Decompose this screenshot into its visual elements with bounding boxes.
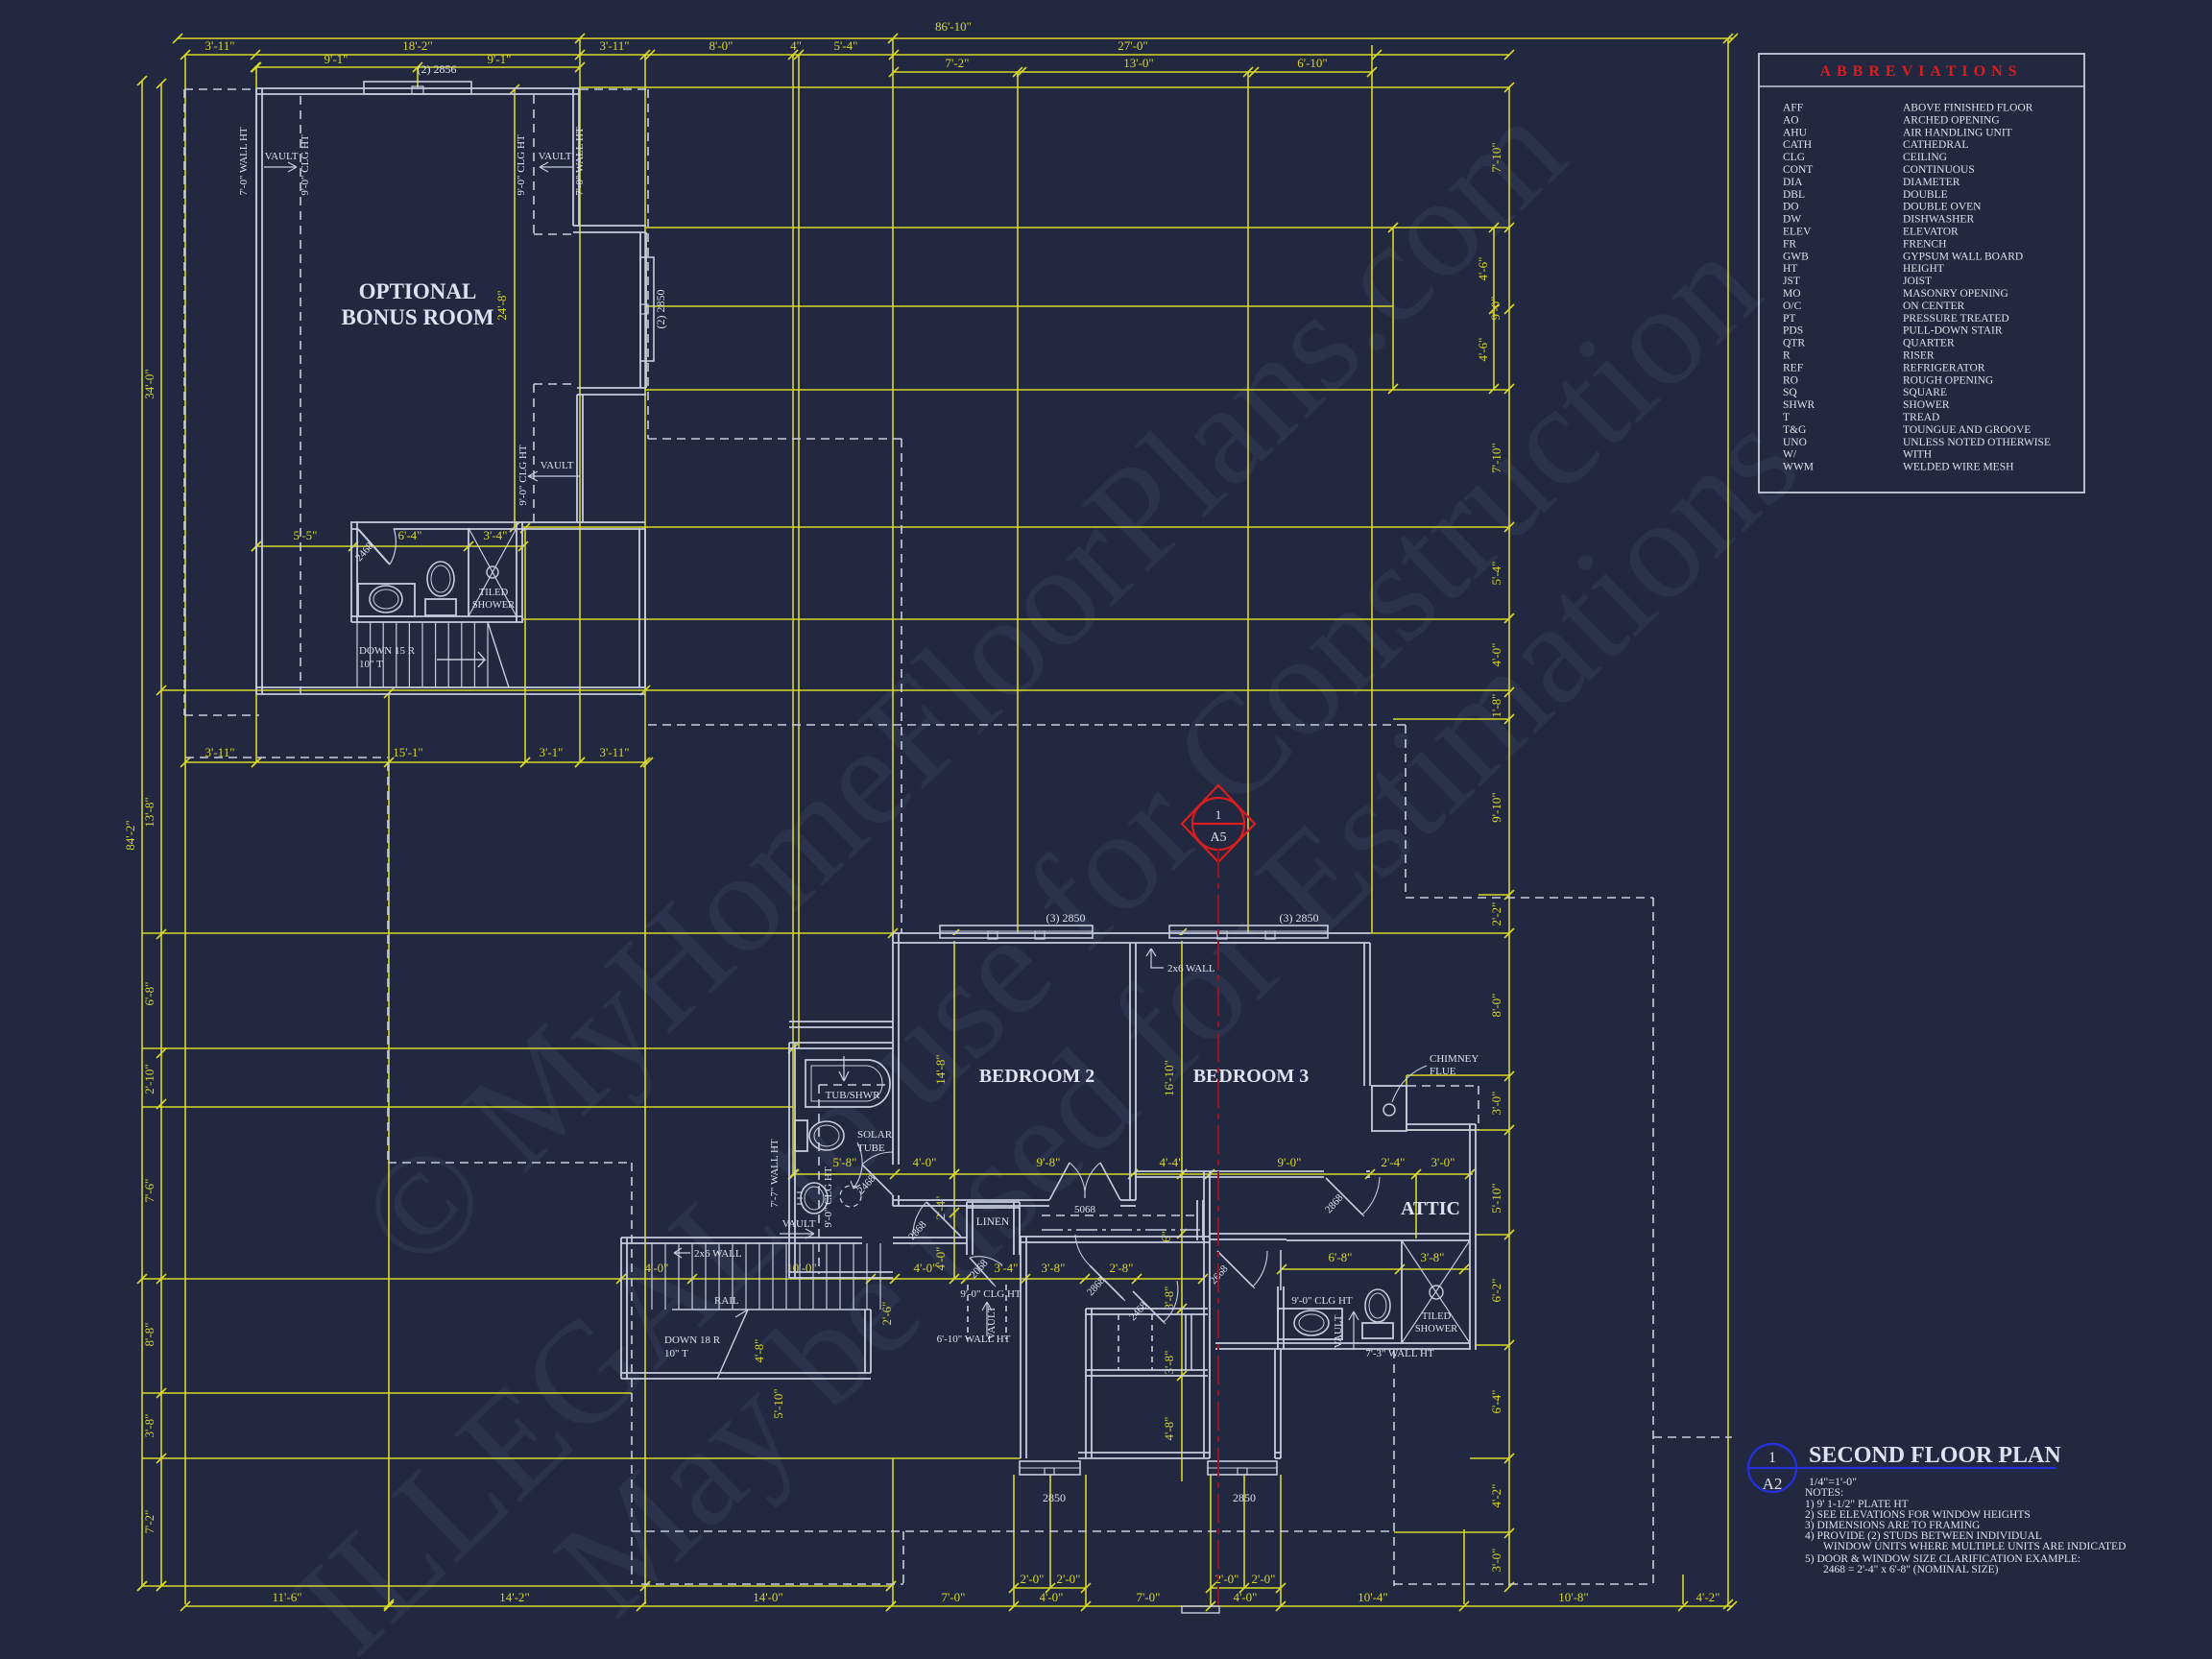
svg-text:6'-4": 6'-4" xyxy=(398,528,422,542)
svg-text:DIAMETER: DIAMETER xyxy=(1903,177,1960,188)
svg-text:(2) 2856: (2) 2856 xyxy=(418,62,457,76)
svg-text:10'-4": 10'-4" xyxy=(1358,1590,1387,1604)
svg-text:RISER: RISER xyxy=(1903,350,1935,362)
svg-text:5'-8": 5'-8" xyxy=(833,1155,857,1169)
svg-text:4'-0": 4'-0" xyxy=(1489,643,1503,667)
svg-text:9'-1": 9'-1" xyxy=(325,52,349,66)
svg-text:18'-2": 18'-2" xyxy=(402,38,432,53)
svg-text:T: T xyxy=(1783,412,1790,423)
svg-text:13'-0": 13'-0" xyxy=(1123,56,1153,70)
svg-text:1: 1 xyxy=(1215,807,1222,822)
svg-text:5068: 5068 xyxy=(1074,1204,1096,1215)
svg-text:7'-7" WALL HT: 7'-7" WALL HT xyxy=(769,1139,781,1208)
svg-text:WITH: WITH xyxy=(1903,449,1932,461)
svg-text:MO: MO xyxy=(1783,288,1801,300)
svg-text:3'-0": 3'-0" xyxy=(1489,1549,1503,1573)
svg-text:R: R xyxy=(1783,350,1791,362)
svg-text:9'-8": 9'-8" xyxy=(1037,1155,1061,1169)
svg-text:(2) 2850: (2) 2850 xyxy=(654,290,667,329)
svg-text:(3) 2850: (3) 2850 xyxy=(1280,911,1319,925)
svg-text:7'-6": 7'-6" xyxy=(142,1179,156,1203)
svg-text:ABBREVIATIONS: ABBREVIATIONS xyxy=(1819,63,2022,80)
svg-text:8'-0": 8'-0" xyxy=(709,38,733,53)
svg-text:7'-0" WALL HT: 7'-0" WALL HT xyxy=(238,127,250,196)
svg-text:2'-2": 2'-2" xyxy=(1489,902,1503,926)
svg-text:DW: DW xyxy=(1783,214,1801,226)
svg-text:3'-11": 3'-11" xyxy=(600,745,630,759)
svg-text:ATTIC: ATTIC xyxy=(1401,1198,1460,1219)
svg-text:PULL-DOWN STAIR: PULL-DOWN STAIR xyxy=(1903,325,2003,337)
svg-text:CEILING: CEILING xyxy=(1903,152,1947,163)
svg-text:4'-0": 4'-0" xyxy=(913,1155,937,1169)
svg-text:ELEVATOR: ELEVATOR xyxy=(1903,227,1959,238)
svg-text:VAULT: VAULT xyxy=(1333,1314,1344,1348)
svg-text:NOTES:: NOTES: xyxy=(1805,1487,1843,1499)
svg-text:VAULT: VAULT xyxy=(539,151,572,162)
svg-text:UNLESS NOTED OTHERWISE: UNLESS NOTED OTHERWISE xyxy=(1903,437,2051,448)
svg-text:3'-11": 3'-11" xyxy=(205,38,235,53)
svg-text:7'-2": 7'-2" xyxy=(946,56,970,70)
svg-text:CONTINUOUS: CONTINUOUS xyxy=(1903,164,1975,176)
svg-text:ARCHED OPENING: ARCHED OPENING xyxy=(1903,114,2000,126)
svg-text:SHOWER: SHOWER xyxy=(1903,399,1950,411)
svg-text:DBL: DBL xyxy=(1783,189,1805,201)
svg-text:FR: FR xyxy=(1783,238,1796,250)
svg-text:8'-0": 8'-0" xyxy=(1489,994,1503,1018)
svg-text:86'-10": 86'-10" xyxy=(935,19,972,34)
svg-text:3'-4": 3'-4" xyxy=(995,1261,1019,1275)
svg-text:84'-2": 84'-2" xyxy=(123,820,137,850)
svg-text:4'-2": 4'-2" xyxy=(1489,1484,1503,1508)
svg-text:7'-0": 7'-0" xyxy=(942,1590,966,1604)
svg-text:SQ: SQ xyxy=(1783,387,1797,398)
svg-text:TILED: TILED xyxy=(1422,1311,1452,1322)
svg-text:27'-0": 27'-0" xyxy=(1118,38,1147,53)
svg-text:3'-1": 3'-1" xyxy=(540,745,564,759)
svg-text:9'-0" CLG HT: 9'-0" CLG HT xyxy=(300,134,311,196)
svg-text:VAULT: VAULT xyxy=(541,460,574,471)
svg-text:5'-4": 5'-4" xyxy=(1489,562,1503,586)
svg-text:ABOVE FINISHED FLOOR: ABOVE FINISHED FLOOR xyxy=(1903,103,2033,114)
svg-text:A2: A2 xyxy=(1763,1475,1783,1493)
svg-text:BONUS ROOM: BONUS ROOM xyxy=(341,305,493,329)
svg-text:AHU: AHU xyxy=(1783,127,1808,138)
svg-text:SOLAR: SOLAR xyxy=(857,1129,893,1141)
svg-text:9'-0" CLG HT: 9'-0" CLG HT xyxy=(1291,1295,1353,1307)
svg-text:DISHWASHER: DISHWASHER xyxy=(1903,214,1974,226)
svg-text:4'-2": 4'-2" xyxy=(1696,1590,1720,1604)
svg-text:9'-0": 9'-0" xyxy=(1278,1155,1302,1169)
svg-text:3'-11": 3'-11" xyxy=(600,38,630,53)
svg-text:CONT: CONT xyxy=(1783,164,1813,176)
svg-text:JOIST: JOIST xyxy=(1903,276,1932,287)
svg-text:4'-8": 4'-8" xyxy=(1162,1417,1176,1441)
svg-text:6'-8": 6'-8" xyxy=(1329,1250,1353,1264)
svg-text:SQUARE: SQUARE xyxy=(1903,387,1947,398)
svg-text:2x6 WALL: 2x6 WALL xyxy=(694,1248,742,1260)
svg-text:GWB: GWB xyxy=(1783,251,1809,262)
svg-text:2'-6": 2'-6" xyxy=(879,1302,894,1326)
svg-text:5'-5": 5'-5" xyxy=(294,528,318,542)
svg-text:AO: AO xyxy=(1783,114,1799,126)
svg-text:DOUBLE OVEN: DOUBLE OVEN xyxy=(1903,202,1982,213)
svg-text:5'-4": 5'-4" xyxy=(834,38,858,53)
svg-text:9'-0" CLG HT: 9'-0" CLG HT xyxy=(960,1288,1022,1300)
svg-text:FLUE: FLUE xyxy=(1430,1066,1456,1077)
svg-text:PDS: PDS xyxy=(1783,325,1803,337)
svg-text:34'-0": 34'-0" xyxy=(142,369,156,398)
svg-text:UNO: UNO xyxy=(1783,437,1807,448)
svg-text:SHOWER: SHOWER xyxy=(472,600,515,611)
svg-text:2850: 2850 xyxy=(1043,1491,1066,1504)
svg-text:4": 4" xyxy=(790,38,802,53)
svg-text:3'-8": 3'-8" xyxy=(1042,1261,1066,1275)
svg-text:4'-6": 4'-6" xyxy=(1476,257,1490,281)
svg-text:10'-8": 10'-8" xyxy=(1558,1590,1588,1604)
svg-text:WELDED WIRE MESH: WELDED WIRE MESH xyxy=(1903,462,2013,473)
svg-text:4'-6": 4'-6" xyxy=(1476,338,1490,362)
svg-text:7'-2": 7'-2" xyxy=(142,1510,156,1534)
svg-text:ELEV: ELEV xyxy=(1783,227,1812,238)
svg-text:BEDROOM 3: BEDROOM 3 xyxy=(1193,1066,1310,1087)
svg-text:6'-4": 6'-4" xyxy=(1489,1390,1503,1414)
svg-text:3'-0": 3'-0" xyxy=(1489,1092,1503,1116)
svg-text:REFRIGERATOR: REFRIGERATOR xyxy=(1903,362,1985,373)
svg-text:16'-10": 16'-10" xyxy=(1162,1060,1176,1096)
svg-text:14'-0": 14'-0" xyxy=(753,1590,782,1604)
svg-text:TREAD: TREAD xyxy=(1903,412,1939,423)
svg-text:(3) 2850: (3) 2850 xyxy=(1046,911,1086,925)
svg-text:DOWN 15 R: DOWN 15 R xyxy=(359,645,416,657)
svg-text:2x6 WALL: 2x6 WALL xyxy=(1167,963,1215,974)
svg-text:1: 1 xyxy=(1768,1450,1776,1466)
svg-text:TUBE: TUBE xyxy=(857,1142,885,1154)
svg-text:3'-0": 3'-0" xyxy=(1431,1155,1455,1169)
svg-text:6'-2": 6'-2" xyxy=(1489,1279,1503,1303)
svg-text:3'-8": 3'-8" xyxy=(142,1414,156,1438)
svg-text:5'-10": 5'-10" xyxy=(1489,1183,1503,1213)
svg-text:4'-8": 4'-8" xyxy=(752,1339,766,1363)
svg-text:LINEN: LINEN xyxy=(976,1216,1010,1228)
svg-text:4'-0": 4'-0" xyxy=(1040,1590,1064,1604)
svg-text:PRESSURE TREATED: PRESSURE TREATED xyxy=(1903,313,2009,325)
svg-text:T&G: T&G xyxy=(1783,424,1806,436)
svg-text:11'-6": 11'-6" xyxy=(273,1590,302,1604)
svg-text:QTR: QTR xyxy=(1783,338,1805,349)
svg-text:RAIL: RAIL xyxy=(714,1295,739,1307)
svg-text:2'-8": 2'-8" xyxy=(1110,1261,1134,1275)
svg-text:SHOWER: SHOWER xyxy=(1415,1324,1457,1334)
svg-text:8'-8": 8'-8" xyxy=(142,1323,156,1347)
svg-text:VAULT: VAULT xyxy=(782,1218,816,1230)
svg-text:W/: W/ xyxy=(1783,449,1797,461)
svg-text:FRENCH: FRENCH xyxy=(1903,238,1946,250)
svg-text:CATHEDRAL: CATHEDRAL xyxy=(1903,139,1968,151)
svg-text:ROUGH OPENING: ROUGH OPENING xyxy=(1903,374,1993,386)
svg-text:3'-8": 3'-8" xyxy=(1162,1286,1176,1310)
svg-text:24'-8": 24'-8" xyxy=(494,290,509,320)
svg-text:WWM: WWM xyxy=(1783,462,1814,473)
svg-text:CLG: CLG xyxy=(1783,152,1805,163)
svg-text:WINDOW UNITS WHERE MULTIPLE UN: WINDOW UNITS WHERE MULTIPLE UNITS ARE IN… xyxy=(1823,1541,2126,1552)
svg-text:15'-1": 15'-1" xyxy=(393,745,422,759)
svg-text:QUARTER: QUARTER xyxy=(1903,338,1955,349)
svg-text:10" T: 10" T xyxy=(664,1348,688,1359)
svg-text:1/4"=1'-0": 1/4"=1'-0" xyxy=(1809,1475,1857,1488)
svg-text:O/C: O/C xyxy=(1783,301,1802,312)
svg-text:2'-0": 2'-0" xyxy=(1252,1572,1276,1586)
svg-text:CHIMNEY: CHIMNEY xyxy=(1430,1053,1479,1065)
svg-text:6'-10" WALL HT: 6'-10" WALL HT xyxy=(937,1334,1011,1345)
svg-text:TOUNGUE AND GROOVE: TOUNGUE AND GROOVE xyxy=(1903,424,2031,436)
svg-text:JST: JST xyxy=(1783,276,1800,287)
svg-text:13'-8": 13'-8" xyxy=(142,797,156,827)
svg-text:6'-8": 6'-8" xyxy=(142,982,156,1006)
svg-text:7'-3" WALL HT: 7'-3" WALL HT xyxy=(1365,1348,1434,1359)
svg-text:4'-4": 4'-4" xyxy=(1160,1155,1184,1169)
svg-text:MASONRY OPENING: MASONRY OPENING xyxy=(1903,288,2008,300)
svg-text:6'-10": 6'-10" xyxy=(1297,56,1327,70)
svg-text:2'-4": 2'-4" xyxy=(1382,1155,1406,1169)
svg-text:9'-0": 9'-0" xyxy=(1488,297,1503,321)
svg-text:ON CENTER: ON CENTER xyxy=(1903,301,1965,312)
svg-text:4'-0": 4'-0" xyxy=(933,1247,948,1271)
svg-text:3'-8": 3'-8" xyxy=(1421,1250,1445,1264)
svg-text:14'-8": 14'-8" xyxy=(933,1054,948,1084)
svg-text:GYPSUM WALL BOARD: GYPSUM WALL BOARD xyxy=(1903,251,2023,262)
svg-text:TUB/SHWR: TUB/SHWR xyxy=(826,1090,881,1101)
svg-text:SHWR: SHWR xyxy=(1783,399,1815,411)
svg-text:9'-10": 9'-10" xyxy=(1489,792,1503,822)
svg-text:PT: PT xyxy=(1783,313,1795,325)
svg-text:10" T: 10" T xyxy=(359,659,383,670)
svg-text:BEDROOM 2: BEDROOM 2 xyxy=(979,1066,1095,1087)
svg-text:7'-0": 7'-0" xyxy=(1137,1590,1161,1604)
svg-text:9'-0" CLG HT: 9'-0" CLG HT xyxy=(823,1166,834,1228)
svg-text:CATH: CATH xyxy=(1783,139,1812,151)
svg-text:2468 = 2'-4" x 6'-8" (NOMINAL: 2468 = 2'-4" x 6'-8" (NOMINAL SIZE) xyxy=(1823,1564,1999,1575)
svg-text:7'-10": 7'-10" xyxy=(1489,443,1503,472)
svg-text:OPTIONAL: OPTIONAL xyxy=(359,279,477,303)
svg-text:TILED: TILED xyxy=(479,588,509,598)
svg-text:5'-10": 5'-10" xyxy=(771,1388,785,1418)
svg-text:2'-10": 2'-10" xyxy=(142,1064,156,1094)
svg-text:14'-2": 14'-2" xyxy=(499,1590,529,1604)
svg-text:9'-0" CLG HT: 9'-0" CLG HT xyxy=(517,445,529,506)
svg-text:AFF: AFF xyxy=(1783,103,1803,114)
svg-text:HEIGHT: HEIGHT xyxy=(1903,263,1944,275)
svg-text:1'-8": 1'-8" xyxy=(1489,694,1503,718)
svg-text:DOWN 18 R: DOWN 18 R xyxy=(664,1334,721,1346)
svg-text:9'-0" CLG HT: 9'-0" CLG HT xyxy=(516,134,527,196)
svg-text:DOUBLE: DOUBLE xyxy=(1903,189,1948,201)
svg-text:7'-10": 7'-10" xyxy=(1489,142,1503,172)
svg-text:2'-0": 2'-0" xyxy=(1021,1572,1045,1586)
svg-text:A5: A5 xyxy=(1210,830,1226,845)
svg-text:REF: REF xyxy=(1783,362,1803,373)
svg-text:9'-1": 9'-1" xyxy=(488,52,512,66)
svg-text:AIR HANDLING UNIT: AIR HANDLING UNIT xyxy=(1903,127,2012,138)
svg-text:HT: HT xyxy=(1783,263,1797,275)
svg-text:7'-0" WALL HT: 7'-0" WALL HT xyxy=(574,127,586,196)
svg-text:RO: RO xyxy=(1783,374,1798,386)
svg-text:VAULT: VAULT xyxy=(265,151,299,162)
svg-text:3'-4": 3'-4" xyxy=(484,528,508,542)
svg-text:SECOND FLOOR PLAN: SECOND FLOOR PLAN xyxy=(1809,1443,2061,1468)
svg-text:DO: DO xyxy=(1783,202,1799,213)
svg-text:2850: 2850 xyxy=(1233,1491,1256,1504)
svg-text:4'-0": 4'-0" xyxy=(1234,1590,1258,1604)
svg-text:DIA: DIA xyxy=(1783,177,1803,188)
svg-text:2'-0": 2'-0" xyxy=(1057,1572,1081,1586)
